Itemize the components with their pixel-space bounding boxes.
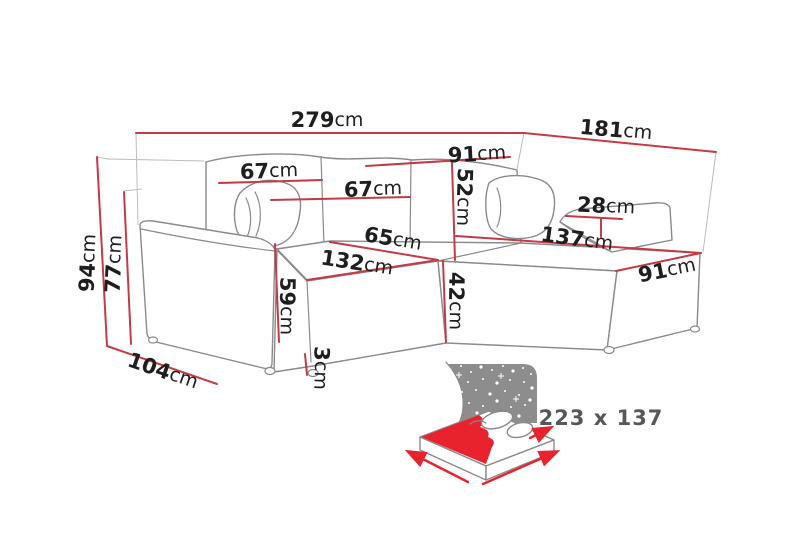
- dim-label-cushion-left: 67cm: [239, 158, 298, 184]
- dim-label-front-height: 42cm: [443, 272, 468, 331]
- diagram-canvas: 279cm 181cm 91cm 52cm 67cm 67cm 65cm 132…: [0, 0, 800, 533]
- sofa-dimension-diagram: 279cm 181cm 91cm 52cm 67cm 67cm 65cm 132…: [0, 0, 800, 533]
- dim-label-cushion-middle: 67cm: [343, 176, 402, 202]
- dim-label-armrest-height: 77cm: [100, 234, 127, 293]
- dim-label-backrest-height: 52cm: [451, 167, 477, 226]
- dim-label-back-height: 91cm: [447, 140, 506, 167]
- dim-label-seat-height: 59cm: [274, 277, 299, 336]
- dim-label-leg-height: 3cm: [308, 346, 334, 390]
- sleeping-area-size: 223 x 137: [539, 406, 664, 430]
- dim-label-total-width: 279cm: [291, 108, 364, 132]
- dim-label-total-height: 94cm: [74, 233, 101, 292]
- dim-label-right-armrest: 28cm: [576, 192, 635, 219]
